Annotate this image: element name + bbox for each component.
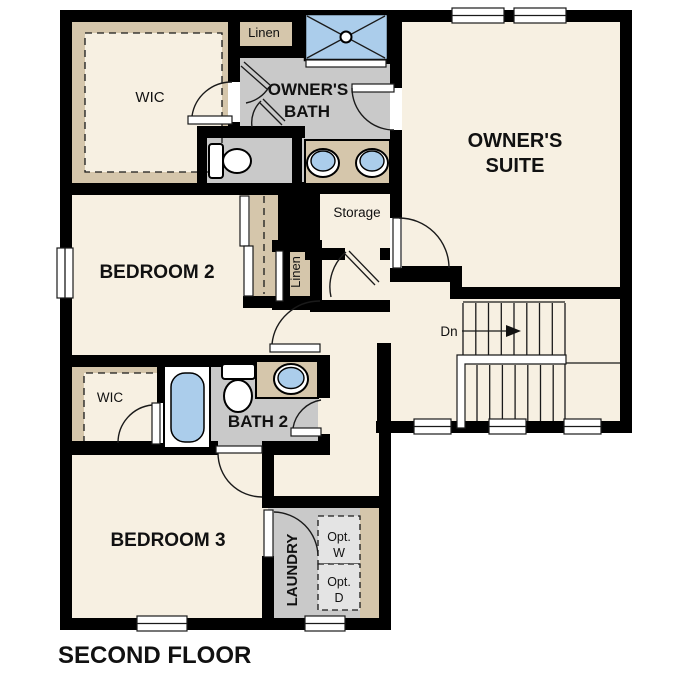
dryer-option-label-1: Opt. (327, 575, 351, 589)
bathtub (164, 366, 210, 448)
wic2-inner (84, 373, 160, 443)
door-leaf (276, 251, 283, 301)
room-label-bedroom2: BEDROOM 2 (99, 262, 214, 283)
window (489, 419, 526, 434)
window (57, 248, 73, 298)
room-label-bedroom3: BEDROOM 3 (110, 530, 225, 551)
floor-plan-drawing: WIC Linen OWNER'S BATH OWNER'S SUITE Sto… (0, 0, 687, 687)
window (305, 616, 345, 631)
room-label-storage: Storage (333, 205, 380, 220)
shower-glass (306, 60, 386, 67)
window (414, 419, 451, 434)
toilet (222, 364, 255, 412)
room-label-laundry: LAUNDRY (284, 534, 301, 607)
floor-plan: WIC Linen OWNER'S BATH OWNER'S SUITE Sto… (0, 0, 687, 687)
room-label-owners-suite-1: OWNER'S (468, 130, 563, 152)
room-label-owners-bath-2: BATH (284, 102, 330, 121)
shower-drain (341, 32, 352, 43)
laundry-counter-strip (360, 508, 379, 618)
washer-option-label-2: W (333, 546, 345, 560)
room-label-owners-suite-2: SUITE (486, 155, 545, 177)
room-label-linen-top: Linen (248, 25, 280, 40)
window (137, 616, 187, 631)
window (452, 8, 504, 23)
window (514, 8, 566, 23)
shower (305, 14, 388, 67)
room-label-wic-owner: WIC (135, 89, 164, 106)
room-label-owners-bath-1: OWNER'S (268, 80, 349, 99)
stairs-down-label: Dn (440, 324, 457, 339)
room-label-bath2: BATH 2 (228, 412, 288, 431)
plan-title: SECOND FLOOR (58, 642, 251, 669)
washer-option-label-1: Opt. (327, 530, 351, 544)
owners-vanity (305, 140, 390, 184)
room-label-wic2: WIC (97, 390, 123, 405)
bath2-vanity (256, 361, 318, 398)
window (564, 419, 601, 434)
dryer-option-label-2: D (334, 591, 343, 605)
room-label-linen-hall: Linen (288, 256, 303, 288)
